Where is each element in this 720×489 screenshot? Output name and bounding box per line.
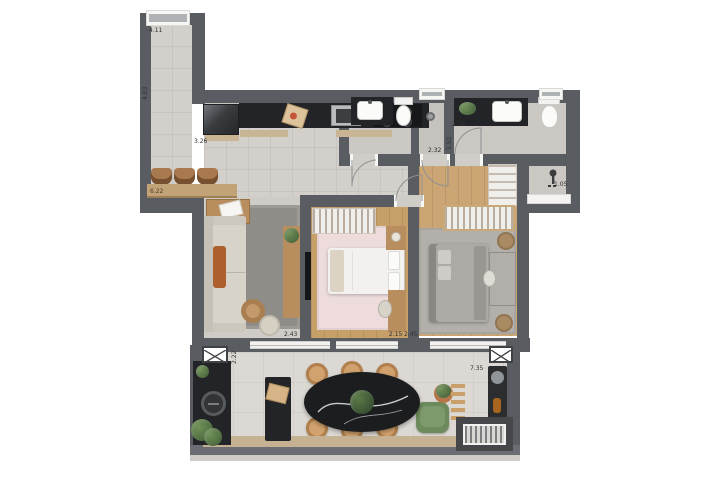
- dim-balcony-depth: 2.22: [231, 351, 238, 364]
- kitchen-sill-right: [336, 130, 392, 137]
- bathroom1-toilet: [396, 105, 411, 126]
- wall-bedroom1-bedroom2: [408, 162, 419, 352]
- bar-stool: [197, 168, 218, 185]
- door-jamb: [421, 195, 424, 207]
- bedroom2-closet: [488, 164, 517, 206]
- dim-bedroom2-entry: 2.15: [389, 331, 402, 338]
- bar-sink: [491, 371, 504, 384]
- pillow: [388, 272, 400, 291]
- kitchen-sill-left: [205, 135, 239, 141]
- pillow: [438, 250, 451, 264]
- door-jamb: [394, 195, 397, 207]
- door-jamb: [447, 154, 450, 166]
- bathroom1-toilet-tank: [394, 97, 413, 105]
- balcony-slab: [190, 455, 520, 461]
- bedroom1-balcony-slider: [336, 341, 398, 349]
- table-lamp: [391, 232, 401, 242]
- bed-foot-blanket: [330, 250, 344, 292]
- dining-table: [304, 372, 420, 432]
- balcony-plant-small: [196, 365, 209, 378]
- bathroom1-door-opening: [352, 154, 376, 166]
- orange-throw: [213, 246, 226, 288]
- barbecue-grill: [201, 391, 226, 416]
- bathroom2-sink: [492, 101, 522, 122]
- tv-panel: [305, 252, 311, 300]
- desk-chair: [378, 300, 392, 318]
- wall-corridor-left: [140, 13, 151, 213]
- ventilation-shaft-icon: [489, 346, 513, 363]
- side-table-top: [246, 304, 260, 318]
- bathroom2-toilet: [541, 105, 558, 128]
- floor-plan: 4.11 4.03 3.26 6.22 2.06 1.52 2.32 1.05 …: [0, 0, 720, 489]
- bar-cabinet: [488, 366, 507, 423]
- refrigerator: [203, 104, 239, 135]
- dim-bath2-width: 2.06: [452, 121, 465, 128]
- ladder-rung: [451, 392, 465, 396]
- deck-strip: [203, 436, 459, 447]
- bathroom2-door-opening: [455, 154, 481, 166]
- dim-kitchen-run: 3.26: [194, 138, 207, 145]
- potted-plant: [436, 384, 451, 398]
- faucet-dot: [368, 100, 372, 104]
- dim-bath-depth: 1.52: [446, 137, 453, 150]
- bedroom1-wardrobe: [312, 208, 376, 234]
- ladder-shelf: [451, 384, 465, 420]
- food-item: [289, 112, 298, 121]
- dim-bedroom1-width: 2.43: [284, 331, 297, 338]
- dim-bath1-width: 2.32: [428, 147, 441, 154]
- bedroom2-bed: [429, 244, 488, 322]
- door-jamb: [375, 154, 378, 166]
- duvet-fold: [352, 252, 353, 290]
- bedroom1-door-opening: [396, 195, 422, 207]
- floor-pouf: [259, 315, 280, 336]
- ladder-rung: [451, 400, 465, 404]
- dim-bar-counter: 6.22: [150, 188, 163, 195]
- wall-bedroom2-right: [517, 154, 529, 352]
- bedroom2-wardrobe: [443, 205, 515, 231]
- wall-living-left: [192, 197, 204, 352]
- bedroom1-bed: [328, 248, 404, 294]
- ladder-rung: [451, 384, 465, 388]
- shower-window: [419, 88, 445, 100]
- console-plant: [284, 228, 299, 243]
- door-jamb: [350, 154, 353, 166]
- vent-grille: [463, 424, 506, 445]
- service-shelf: [527, 194, 571, 204]
- round-pouf: [497, 232, 515, 250]
- bottle: [493, 398, 501, 413]
- bedroom2-door-opening: [422, 154, 448, 166]
- door-jamb: [420, 154, 423, 166]
- armchair-cushion: [420, 406, 445, 427]
- pillow: [438, 266, 451, 280]
- door-jamb: [480, 154, 483, 166]
- ventilation-shaft-icon: [202, 346, 228, 363]
- ac-condenser-unit: [456, 417, 513, 451]
- living-balcony-slider: [250, 341, 330, 349]
- corridor-window: [146, 10, 190, 26]
- ladder-rung: [451, 408, 465, 412]
- shower-drain-icon: [426, 112, 435, 121]
- faucet-dot: [505, 100, 509, 104]
- dim-corridor-side: 4.03: [142, 87, 149, 100]
- desk-chair: [483, 270, 496, 287]
- round-pouf: [495, 314, 513, 332]
- dim-balcony-width: 7.35: [470, 365, 483, 372]
- pillow: [388, 251, 400, 270]
- grill-handle: [208, 403, 219, 405]
- bar-stool: [174, 168, 195, 185]
- dim-service-nook: 1.05: [554, 181, 567, 188]
- dim-corridor-window: 4.11: [149, 27, 162, 34]
- bedroom1-nightstand: [386, 226, 406, 250]
- bar-stool: [151, 168, 172, 185]
- balcony-plant-large: [204, 428, 222, 446]
- bathroom2-window: [539, 88, 563, 100]
- dim-bedroom2-width: 2.45: [404, 331, 417, 338]
- kitchen-sill-mid: [240, 130, 288, 137]
- green-armchair: [416, 402, 449, 433]
- table-centerpiece-plant: [350, 390, 374, 414]
- counter-plant: [459, 102, 476, 115]
